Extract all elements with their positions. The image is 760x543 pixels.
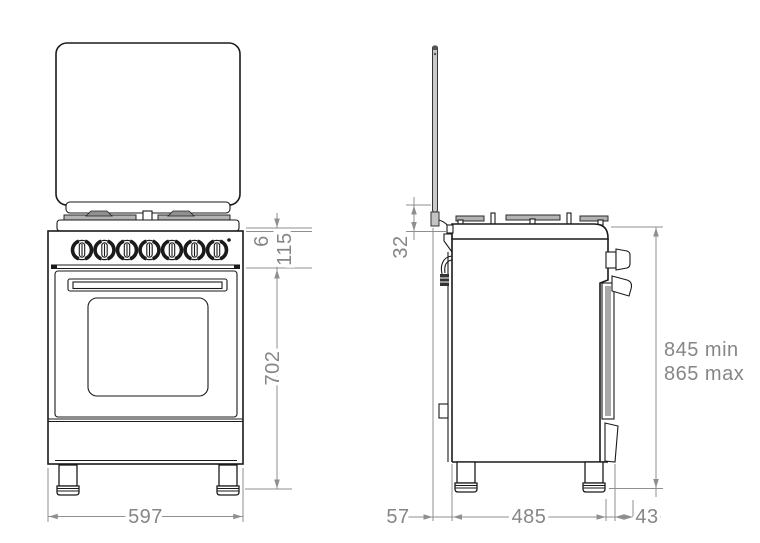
rear-clamp <box>439 404 448 418</box>
lid-hinge <box>431 212 439 226</box>
door-bottom-piece <box>605 423 618 462</box>
burner-knob <box>207 240 226 259</box>
knob-stem <box>606 252 616 268</box>
adjustable-foot <box>57 465 79 495</box>
dim-height-max: 865 max <box>664 363 744 385</box>
side-view: 32 845 min 865 max 57 485 43 <box>386 46 744 528</box>
hinge-mount <box>447 225 453 233</box>
burner-knob <box>162 240 181 259</box>
front-view: 6 115 702 597 <box>48 43 312 528</box>
burner-cap <box>168 211 194 216</box>
adjustable-foot <box>217 465 239 495</box>
dim-grate-height: 6 <box>251 235 273 247</box>
burner-knob <box>95 240 114 259</box>
dim-handle-offset: 43 <box>635 506 658 528</box>
burner-knob <box>117 240 136 259</box>
lid-edge <box>433 46 438 212</box>
dim-depth: 485 <box>512 506 547 528</box>
burner-knob <box>140 240 159 259</box>
lid-panel <box>56 43 240 205</box>
knob-cap <box>616 249 630 270</box>
lid-tip <box>433 46 438 50</box>
burner-cap <box>86 211 112 216</box>
door-handle-side <box>612 276 632 296</box>
lid-tip-dot <box>434 53 436 55</box>
gas-valve <box>440 274 449 286</box>
indicator-light <box>227 238 231 242</box>
burner-peg <box>491 213 495 224</box>
dim-height-min: 845 min <box>664 339 739 361</box>
dim-width: 597 <box>128 506 163 528</box>
rear-details <box>439 234 452 418</box>
cooker-body-front <box>48 231 243 464</box>
hob-profile <box>452 224 608 239</box>
door-slab-shade <box>605 286 611 416</box>
dim-lid-to-hob: 32 <box>390 235 412 258</box>
adjustable-foot <box>583 462 605 492</box>
adjustable-foot <box>455 462 477 492</box>
panel-gap-end <box>234 265 240 269</box>
hob-grates-front <box>57 211 239 231</box>
lid-open-front <box>56 43 240 213</box>
drawing-canvas: 6 115 702 597 <box>0 0 760 543</box>
rear-bracket <box>444 234 452 252</box>
dim-body-height: 702 <box>262 351 284 386</box>
dim-panel-height: 115 <box>274 232 296 265</box>
lid-open-side <box>431 46 451 231</box>
cooker-dimension-drawing: 6 115 702 597 <box>0 0 760 543</box>
door-handle <box>68 279 227 291</box>
pan-support <box>580 216 608 221</box>
gas-pipe-outer <box>441 256 452 274</box>
feet-front <box>57 465 239 495</box>
burner-knob <box>72 240 91 259</box>
feet-side <box>455 462 605 492</box>
panel-gap-end <box>51 265 57 269</box>
dimensions-side: 32 845 min 865 max 57 485 43 <box>386 197 744 528</box>
knob-profile-side <box>606 249 630 270</box>
oven-door-side <box>602 276 632 462</box>
burner-knob <box>185 240 204 259</box>
burner-peg <box>567 213 571 224</box>
hob-rim <box>57 220 239 231</box>
cooker-body-side <box>448 239 608 462</box>
dim-rear-gap: 57 <box>386 506 409 528</box>
